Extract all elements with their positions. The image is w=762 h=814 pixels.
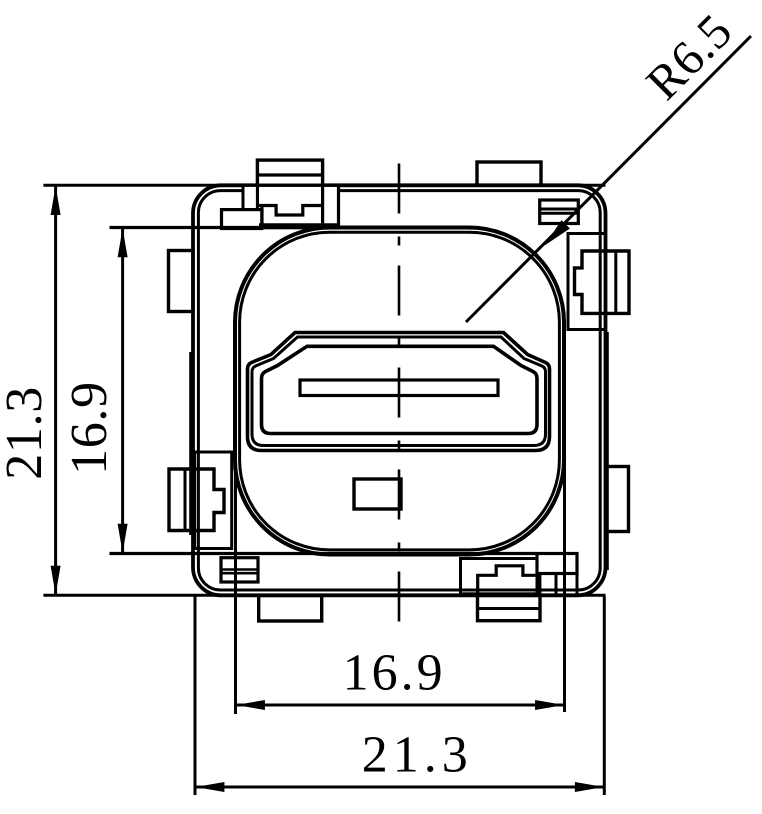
svg-text:21.3: 21.3: [0, 387, 53, 480]
svg-text:16.9: 16.9: [61, 382, 118, 475]
svg-text:21.3: 21.3: [362, 726, 468, 783]
svg-text:16.9: 16.9: [343, 645, 443, 702]
